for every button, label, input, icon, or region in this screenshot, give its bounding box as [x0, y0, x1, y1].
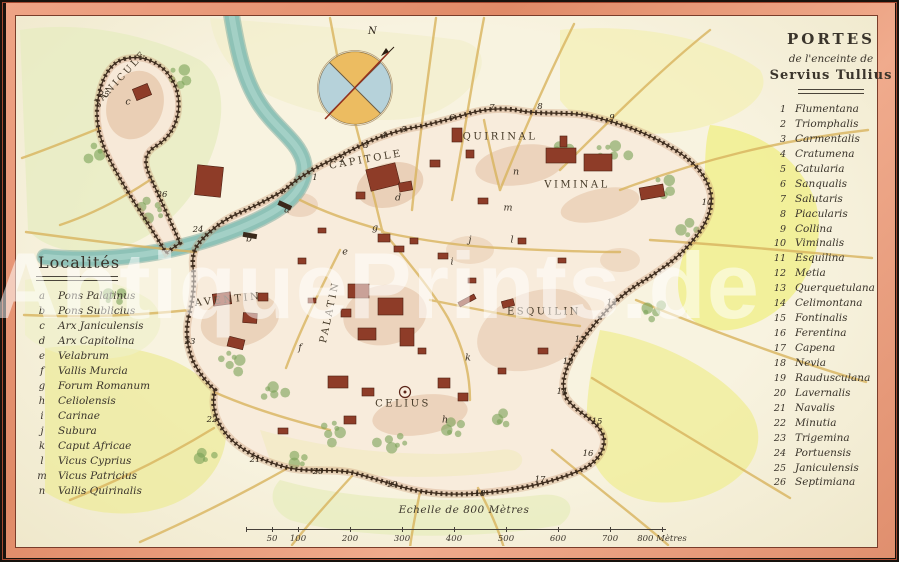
porte-item: 20Lavernalis	[768, 387, 894, 402]
porte-name: Celimontana	[795, 297, 863, 309]
porte-item: 2Triomphalis	[768, 118, 894, 133]
porte-number: 16	[768, 328, 786, 339]
scale-tick	[454, 527, 455, 532]
scale-tick	[402, 527, 403, 532]
compass-north-label: N	[368, 26, 377, 37]
porte-item: 22Minutia	[768, 417, 894, 432]
gate-number: 1	[312, 173, 317, 183]
localite-letter: f	[34, 366, 50, 377]
porte-item: 1Flumentana	[768, 103, 894, 118]
locality-letter-marker: g	[372, 223, 378, 234]
localite-item: hCeliolensis	[34, 395, 174, 410]
gate-number: 14	[557, 387, 568, 397]
localite-letter: l	[34, 456, 50, 467]
porte-number: 14	[768, 298, 786, 309]
gate-number: 6	[449, 113, 454, 123]
scale-tick-label: 300	[394, 534, 410, 544]
localite-item: kCaput Africae	[34, 440, 174, 455]
locality-letter-marker: h	[442, 415, 448, 426]
gate-number: 9	[609, 113, 614, 123]
porte-item: 18Nevia	[768, 357, 894, 372]
locality-letter-marker: f	[298, 343, 302, 354]
locality-letter-marker: e	[342, 247, 348, 258]
porte-name: Portuensis	[795, 447, 851, 459]
porte-name: Capena	[795, 342, 835, 354]
porte-name: Metia	[795, 267, 826, 279]
gate-number: 19	[387, 480, 398, 490]
gate-number: 17	[535, 475, 546, 485]
scale-caption: Echelle de 800 Mètres	[246, 504, 682, 516]
porte-item: 16Ferentina	[768, 327, 894, 342]
map-label-esquilin: ESQUILIN	[507, 307, 581, 318]
scale-tick	[246, 527, 247, 532]
localite-letter: k	[34, 441, 50, 452]
localite-name: Celiolensis	[58, 395, 116, 407]
gate-number: 15	[592, 417, 603, 427]
scale-tick-label: 600	[550, 534, 566, 544]
localite-item: iCarinae	[34, 410, 174, 425]
locality-letter-marker: i	[450, 257, 453, 268]
localite-letter: g	[34, 381, 50, 392]
porte-item: 9Collina	[768, 223, 894, 238]
gate-number: 12	[575, 335, 586, 345]
porte-name: Sanqualis	[795, 178, 847, 190]
locality-letter-marker: d	[395, 193, 401, 204]
porte-name: Esquilina	[795, 252, 845, 264]
localite-letter: n	[34, 486, 50, 497]
localites-panel: Localités aPons PalatinusbPons Sublicius…	[34, 253, 174, 500]
localite-name: Arx Capitolina	[58, 335, 135, 347]
porte-item: 14Celimontana	[768, 297, 894, 312]
scale-tick	[298, 527, 299, 532]
localite-name: Pons Sublicius	[58, 305, 135, 317]
porte-number: 6	[768, 179, 786, 190]
localite-name: Subura	[58, 425, 97, 437]
portes-rule	[798, 89, 864, 94]
porte-item: 17Capena	[768, 342, 894, 357]
gate-number: 20	[313, 467, 324, 477]
localite-item: gForum Romanum	[34, 380, 174, 395]
porte-number: 19	[768, 373, 786, 384]
porte-name: Trigemina	[795, 432, 850, 444]
localite-letter: j	[34, 426, 50, 437]
gate-number: 18	[475, 489, 486, 499]
gate-number: 21	[250, 455, 261, 465]
portes-title: PORTES	[768, 30, 894, 48]
porte-name: Janiculensis	[795, 462, 859, 474]
porte-item: 3Carmentalis	[768, 133, 894, 148]
porte-name: Querquetulana	[795, 282, 875, 294]
porte-item: 12Metia	[768, 267, 894, 282]
localite-item: bPons Sublicius	[34, 305, 174, 320]
porte-number: 22	[768, 418, 786, 429]
locality-letter-marker: b	[246, 234, 252, 245]
porte-name: Minutia	[795, 417, 836, 429]
scale-tick	[506, 527, 507, 532]
scale-bar: Echelle de 800 Mètres 501002003004005006…	[246, 504, 682, 516]
porte-name: Raudusculana	[795, 372, 870, 384]
localite-name: Carinae	[58, 410, 100, 422]
gate-number: 5	[401, 125, 406, 135]
porte-name: Catularia	[795, 163, 845, 175]
localite-letter: d	[34, 336, 50, 347]
localite-letter: a	[34, 291, 50, 302]
portes-subtitle: de l'enceinte de	[768, 53, 894, 65]
scale-tick	[558, 527, 559, 532]
porte-number: 24	[768, 448, 786, 459]
porte-number: 2	[768, 119, 786, 130]
porte-item: 10Viminalis	[768, 237, 894, 252]
porte-item: 7Salutaris	[768, 193, 894, 208]
localite-item: aPons Palatinus	[34, 290, 174, 305]
localites-title: Localités	[34, 253, 174, 272]
locality-letter-marker: j	[469, 235, 472, 246]
map-page: JANICULE CAPITOLE QUIRINAL VIMINAL ESQUI…	[0, 0, 899, 562]
gate-number: 13	[563, 357, 574, 367]
locality-letter-marker: a	[284, 205, 290, 216]
gate-number: 22	[207, 415, 218, 425]
map-label-celius: CELIUS	[375, 399, 431, 410]
localite-name: Caput Africae	[58, 440, 131, 452]
porte-number: 20	[768, 388, 786, 399]
porte-item: 5Catularia	[768, 163, 894, 178]
locality-letter-marker: c	[125, 97, 130, 108]
porte-name: Collina	[795, 223, 832, 235]
localite-letter: c	[34, 321, 50, 332]
portes-panel: PORTES de l'enceinte de Servius Tullius …	[768, 30, 894, 491]
porte-name: Salutaris	[795, 193, 843, 205]
gate-number: 4	[381, 131, 386, 141]
porte-item: 6Sanqualis	[768, 178, 894, 193]
scale-tick-label: 200	[342, 534, 358, 544]
porte-number: 11	[768, 253, 786, 264]
porte-number: 10	[768, 238, 786, 249]
localite-item: jSubura	[34, 425, 174, 440]
localite-name: Pons Palatinus	[58, 290, 135, 302]
porte-item: 19Raudusculana	[768, 372, 894, 387]
porte-item: 4Cratumena	[768, 148, 894, 163]
scale-tick-label: 100	[290, 534, 306, 544]
map-label-quirinal: QUIRINAL	[463, 132, 538, 143]
localites-rule	[36, 276, 118, 281]
localite-name: Vallis Quirinalis	[58, 485, 142, 497]
gate-number: 11	[607, 298, 618, 308]
porte-number: 4	[768, 149, 786, 160]
locality-letter-marker: k	[465, 353, 471, 364]
map-label-viminal: VIMINAL	[544, 180, 609, 191]
porte-name: Triomphalis	[795, 118, 859, 130]
localites-list: aPons PalatinusbPons SubliciuscArx Janic…	[34, 290, 174, 500]
localite-item: fVallis Murcia	[34, 365, 174, 380]
localite-letter: h	[34, 396, 50, 407]
scale-tick	[610, 527, 611, 532]
localite-item: lVicus Cyprius	[34, 455, 174, 470]
porte-name: Flumentana	[795, 103, 859, 115]
porte-number: 5	[768, 164, 786, 175]
porte-item: 24Portuensis	[768, 447, 894, 462]
porte-number: 15	[768, 313, 786, 324]
localite-item: nVallis Quirinalis	[34, 485, 174, 500]
scale-tick-label: 800 Mètres	[637, 534, 687, 544]
localite-name: Vallis Murcia	[58, 365, 128, 377]
locality-letter-marker: m	[503, 203, 512, 214]
porte-name: Septimiana	[795, 476, 855, 488]
porte-name: Nevia	[795, 357, 826, 369]
porte-number: 21	[768, 403, 786, 414]
gate-number: 2	[339, 155, 344, 165]
gate-number: 7	[489, 103, 494, 113]
porte-name: Carmentalis	[795, 133, 860, 145]
gate-number: 25	[99, 90, 110, 100]
locality-letter-marker: l	[510, 235, 513, 246]
gate-number: 3	[363, 141, 368, 151]
porte-item: 25Janiculensis	[768, 462, 894, 477]
porte-number: 13	[768, 283, 786, 294]
scale-tick-label: 400	[446, 534, 462, 544]
portes-subject: Servius Tullius	[768, 68, 894, 83]
localite-name: Forum Romanum	[58, 380, 150, 392]
scale-tick	[662, 527, 663, 532]
gate-number: 23	[185, 337, 196, 347]
porte-item: 26Septimiana	[768, 476, 894, 491]
porte-number: 8	[768, 209, 786, 220]
porte-number: 1	[768, 104, 786, 115]
localite-letter: e	[34, 351, 50, 362]
porte-number: 18	[768, 358, 786, 369]
porte-item: 11Esquilina	[768, 252, 894, 267]
porte-number: 9	[768, 224, 786, 235]
gate-number: 10	[702, 198, 713, 208]
scale-tick	[350, 527, 351, 532]
porte-number: 12	[768, 268, 786, 279]
localite-name: Arx Janiculensis	[58, 320, 144, 332]
gate-number: 16	[583, 449, 594, 459]
porte-name: Fontinalis	[795, 312, 848, 324]
localite-item: cArx Janiculensis	[34, 320, 174, 335]
gate-number: 24	[193, 225, 204, 235]
porte-item: 15Fontinalis	[768, 312, 894, 327]
localite-name: Vicus Cyprius	[58, 455, 131, 467]
porte-number: 23	[768, 433, 786, 444]
localite-name: Vicus Patricius	[58, 470, 137, 482]
scale-line	[246, 529, 666, 531]
gate-number: 26	[157, 190, 168, 200]
porte-number: 17	[768, 343, 786, 354]
localite-name: Velabrum	[58, 350, 109, 362]
localite-item: eVelabrum	[34, 350, 174, 365]
porte-name: Lavernalis	[795, 387, 851, 399]
localite-letter: i	[34, 411, 50, 422]
porte-name: Viminalis	[795, 237, 844, 249]
porte-name: Cratumena	[795, 148, 855, 160]
porte-number: 25	[768, 463, 786, 474]
portes-list: 1Flumentana2Triomphalis3Carmentalis4Crat…	[768, 103, 894, 491]
gate-number: 8	[537, 102, 542, 112]
porte-item: 21Navalis	[768, 402, 894, 417]
porte-number: 26	[768, 477, 786, 488]
scale-tick-label: 50	[267, 534, 278, 544]
localite-item: dArx Capitolina	[34, 335, 174, 350]
porte-item: 8Piacularis	[768, 208, 894, 223]
scale-tick	[272, 527, 273, 532]
locality-letter-marker: n	[513, 167, 519, 178]
porte-name: Piacularis	[795, 208, 848, 220]
scale-tick-label: 700	[602, 534, 618, 544]
localite-letter: m	[34, 471, 50, 482]
porte-item: 13Querquetulana	[768, 282, 894, 297]
porte-name: Navalis	[795, 402, 835, 414]
porte-item: 23Trigemina	[768, 432, 894, 447]
porte-name: Ferentina	[795, 327, 847, 339]
porte-number: 3	[768, 134, 786, 145]
localite-letter: b	[34, 306, 50, 317]
porte-number: 7	[768, 194, 786, 205]
scale-tick-label: 500	[498, 534, 514, 544]
localite-item: mVicus Patricius	[34, 470, 174, 485]
